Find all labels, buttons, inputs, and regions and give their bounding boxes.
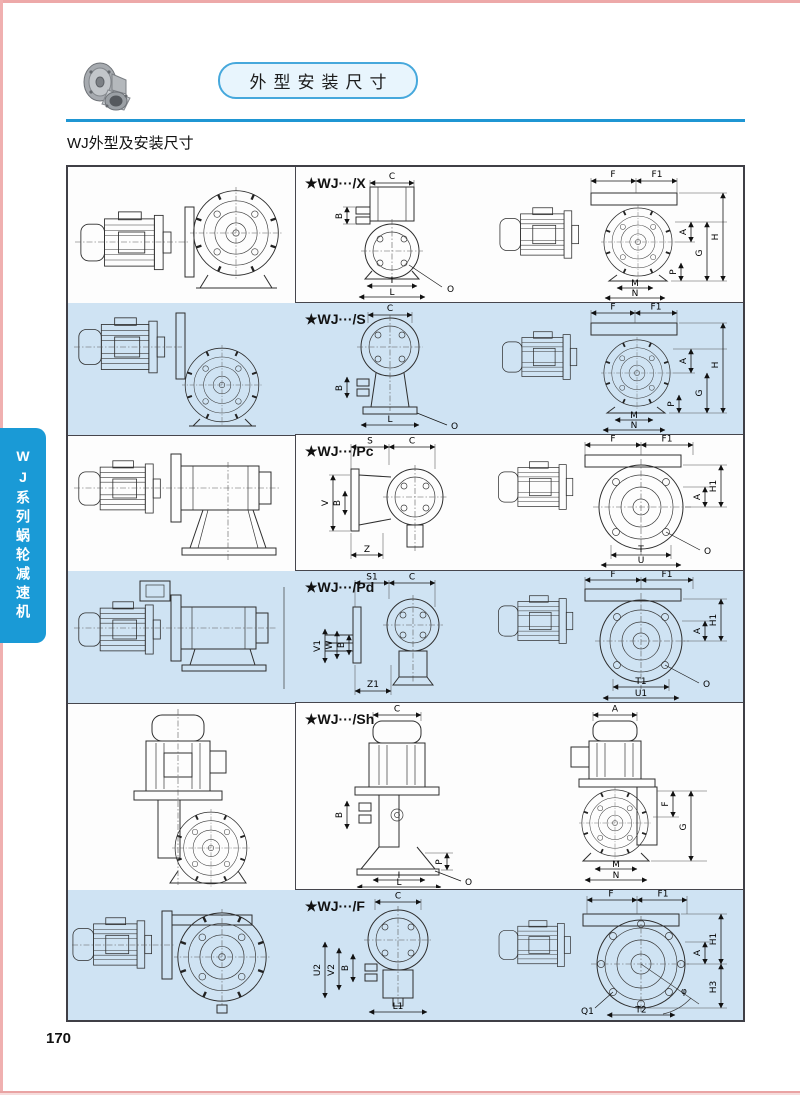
- section-title-badge: 外型安装尺寸: [218, 62, 418, 99]
- svg-text:Q1: Q1: [581, 1007, 594, 1017]
- svg-text:T: T: [637, 545, 644, 555]
- svg-text:F: F: [661, 801, 671, 806]
- row-pd-photo-cell: [68, 571, 296, 704]
- row-sh-front-view: C B P I: [295, 703, 495, 888]
- model-label: ★WJ···/Sh: [305, 711, 374, 728]
- row-x-photo-cell: [68, 167, 296, 304]
- svg-text:N: N: [632, 289, 639, 299]
- row-sh-side-view: A F G M: [495, 703, 740, 888]
- svg-text:O: O: [447, 285, 454, 295]
- svg-text:F1: F1: [651, 303, 662, 313]
- svg-text:V1: V1: [313, 640, 323, 652]
- page-number: 170: [46, 1030, 71, 1047]
- row-x-assembly-drawing: [70, 169, 294, 301]
- svg-text:A: A: [693, 493, 703, 500]
- svg-text:A: A: [693, 627, 703, 634]
- svg-text:I: I: [391, 276, 394, 286]
- svg-text:M: M: [630, 411, 638, 421]
- row-pc-assembly-drawing: [70, 436, 294, 570]
- svg-text:T2: T2: [634, 1006, 646, 1016]
- model-label: ★WJ···/Pd: [305, 579, 374, 596]
- svg-text:U1: U1: [635, 689, 647, 699]
- model-label: ★WJ···/Pc: [305, 443, 374, 460]
- row-pd-front-view: F F1 A H1 T1 U1 O: [495, 571, 743, 701]
- svg-text:P: P: [667, 401, 677, 407]
- svg-text:F: F: [610, 170, 615, 180]
- svg-text:B: B: [341, 965, 351, 971]
- svg-text:C: C: [387, 304, 393, 314]
- svg-text:M: M: [631, 279, 639, 289]
- svg-text:F1: F1: [662, 435, 673, 445]
- svg-text:L: L: [389, 288, 394, 298]
- row-pd-dims-cell: ★WJ···/Pd S1 C V1: [295, 571, 743, 703]
- row-s-assembly-drawing: [70, 305, 294, 433]
- catalog-page: 外型安装尺寸 WJ外型及安装尺寸 WJ系列蜗轮减速机 ★WJ···/X: [0, 0, 800, 1095]
- row-sh-assembly-drawing: [70, 705, 294, 888]
- row-s-side-view: F F1 A H G P M N: [495, 303, 743, 433]
- dimension-table: ★WJ···/X C B: [66, 165, 745, 1022]
- svg-text:L1: L1: [393, 1002, 404, 1012]
- svg-text:G: G: [679, 823, 689, 830]
- svg-text:A: A: [679, 228, 689, 235]
- svg-text:F: F: [608, 890, 613, 900]
- svg-text:L: L: [396, 878, 401, 888]
- svg-text:Z1: Z1: [367, 680, 379, 690]
- row-pd-assembly-drawing: [70, 573, 294, 701]
- svg-text:O: O: [704, 547, 711, 557]
- svg-text:H: H: [711, 362, 721, 369]
- svg-text:B: B: [335, 213, 345, 219]
- row-pc-photo-cell: [68, 435, 296, 572]
- svg-text:L: L: [387, 415, 392, 425]
- svg-text:F1: F1: [652, 170, 663, 180]
- svg-text:B: B: [335, 812, 345, 818]
- row-f-dims-cell: ★WJ···/F C U2 V2: [295, 890, 743, 1020]
- svg-text:W: W: [325, 640, 335, 649]
- row-f-side-view: F F1 H1 A H3 Q1 T2 φ: [495, 890, 743, 1018]
- row-x-dims-cell: ★WJ···/X C B: [295, 167, 743, 303]
- svg-text:F1: F1: [658, 890, 669, 900]
- svg-text:F1: F1: [662, 571, 673, 580]
- svg-text:N: N: [613, 871, 620, 881]
- header-rule: [66, 119, 745, 122]
- svg-text:O: O: [703, 680, 710, 690]
- svg-text:F: F: [610, 571, 615, 580]
- svg-text:B: B: [333, 500, 343, 506]
- svg-text:T1: T1: [634, 677, 646, 687]
- model-label: ★WJ···/X: [305, 175, 366, 192]
- page-edge-top: [0, 0, 800, 3]
- svg-text:O: O: [451, 422, 458, 432]
- svg-text:C: C: [389, 172, 395, 182]
- row-f-assembly-drawing: [70, 891, 294, 1019]
- svg-text:B: B: [335, 385, 345, 391]
- row-sh-photo-cell: [68, 703, 296, 891]
- svg-text:G: G: [695, 249, 705, 256]
- svg-text:A: A: [679, 357, 689, 364]
- svg-text:φ: φ: [681, 987, 687, 997]
- svg-text:P: P: [669, 269, 679, 275]
- svg-text:A: A: [693, 949, 703, 956]
- svg-text:U: U: [638, 556, 645, 566]
- product-photo: [82, 60, 140, 114]
- svg-text:P: P: [435, 859, 445, 865]
- svg-text:H1: H1: [709, 933, 719, 946]
- series-side-tab: WJ系列蜗轮减速机: [0, 428, 46, 643]
- series-side-tab-label: WJ系列蜗轮减速机: [16, 448, 30, 623]
- svg-text:C: C: [394, 705, 400, 715]
- row-f-photo-cell: [68, 890, 296, 1020]
- row-pc-dims-cell: ★WJ···/Pc S C V: [295, 435, 743, 571]
- svg-text:M: M: [612, 860, 620, 870]
- page-subtitle: WJ外型及安装尺寸: [67, 132, 194, 153]
- svg-text:N: N: [631, 421, 638, 431]
- svg-text:H1: H1: [709, 614, 719, 627]
- svg-text:H1: H1: [709, 480, 719, 493]
- section-title: 外型安装尺寸: [250, 68, 394, 93]
- svg-text:C: C: [409, 437, 415, 447]
- svg-text:G: G: [695, 389, 705, 396]
- svg-text:B: B: [337, 642, 347, 648]
- svg-text:C: C: [395, 892, 401, 902]
- svg-text:F: F: [610, 435, 615, 445]
- svg-text:V: V: [321, 499, 331, 506]
- row-s-photo-cell: [68, 303, 296, 436]
- svg-text:U2: U2: [313, 964, 323, 976]
- svg-text:H3: H3: [709, 981, 719, 994]
- svg-text:O: O: [465, 878, 472, 888]
- model-label: ★WJ···/S: [305, 311, 366, 328]
- svg-text:C: C: [409, 573, 415, 583]
- row-s-dims-cell: ★WJ···/S C B L: [295, 303, 743, 435]
- svg-text:Z: Z: [364, 545, 370, 555]
- row-x-side-view: F F1 A G H P M N: [495, 167, 743, 301]
- svg-text:A: A: [612, 705, 619, 715]
- svg-text:V2: V2: [327, 964, 337, 976]
- model-label: ★WJ···/F: [305, 898, 365, 915]
- svg-text:F: F: [610, 303, 615, 313]
- svg-text:H: H: [711, 234, 721, 241]
- row-sh-dims-cell: ★WJ···/Sh C B: [295, 703, 743, 890]
- row-pc-front-view: F F1 A H1 T U O: [495, 435, 743, 569]
